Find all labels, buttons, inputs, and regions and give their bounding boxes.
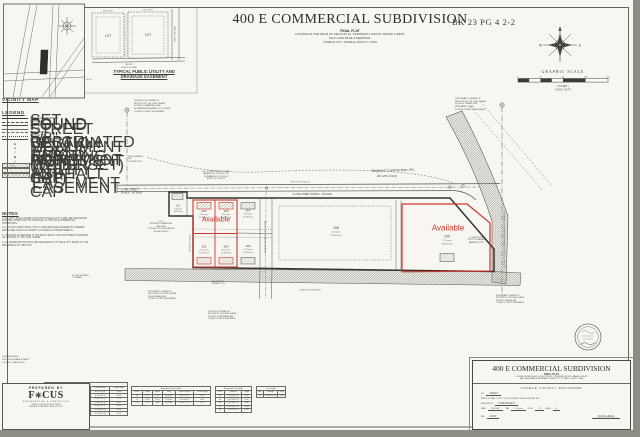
recorder-no-value: 546927 (486, 391, 501, 396)
lot-103-number: 103 (201, 209, 206, 213)
surveyor-seal (575, 324, 601, 350)
lot-102-acres: 0.72 acres (200, 249, 209, 252)
easement-detail: LOT LOT 10.0' P.U.E. 10.0' P.U.E. FRONT … (92, 7, 185, 69)
vicinity-site-marker (40, 50, 48, 74)
detail-lot-a-label: LOT (105, 34, 111, 38)
easement-curve-table-grid: Curve #LengthRadiusDeltaChord DirectionC… (131, 390, 211, 406)
recorder-time-value: 3:36 pm (511, 407, 525, 411)
line-table: Line Table Line #DirectionLengthL1N 45°0… (256, 386, 286, 398)
vine-street-label-left-2: (PUBLIC - 66' ROW) (121, 192, 142, 194)
recorder-book-value: 23 (535, 407, 544, 411)
pue-easement-note: 10' WIDE PUBLIC UTILITY & DRAINAGE EASEM… (463, 237, 490, 244)
lot-107-number: 107 (245, 209, 250, 213)
legend: LEGEND SUBDIVISION BOUNDARY CENTERLINE R… (2, 110, 90, 178)
book-page-reference: BK 23 PG 4 2-2 (452, 17, 516, 27)
available-label-2: Available (432, 224, 465, 233)
adjacent-line-sample (2, 139, 28, 140)
recorder-signature-caption: TOOELE COUNTY RECORDER (592, 419, 620, 420)
focus-logo: F✳CUS (3, 390, 89, 401)
mid-street-label: 250 EAST (PUBLIC - 41.5' ROW) (264, 221, 267, 254)
recorder-time-label: TIME (505, 408, 510, 410)
lot-102-sqft: 31,363 sq ft (199, 252, 209, 255)
logo-letter-f: F (28, 390, 35, 401)
vicinity-map (4, 4, 85, 98)
northeast-corner-monument-note: NORTHEAST CORNER OF SECTION 10, T3S, R4W… (455, 98, 507, 112)
lot-106-sqft: 31,363 sq ft (243, 251, 253, 254)
easement-line-table: Easement Line Table Line #DirectionLengt… (215, 386, 252, 413)
compass-east-label: E (579, 43, 581, 47)
recorder-date-label: DATE (481, 408, 486, 410)
detail-dim-a: 10.0' P.U.E. (103, 11, 114, 13)
vicinity-map-label: VICINITY MAP (2, 97, 39, 102)
adjacent-lot1-note: LOT 1 EXISTING COMMERCIAL BUILDING TOOEL… (142, 221, 180, 233)
easement-detail-nts: N.T.S. (86, 79, 92, 81)
recorder-request-value: DTM Builders (495, 401, 518, 406)
section-monument-icon: ⊕ (2, 142, 28, 146)
lot-105-acres: 0.73 acres (222, 213, 231, 216)
logo-letters-cus: CUS (42, 390, 64, 401)
lot-105-number: 105 (223, 209, 228, 213)
graphic-scale-title: GRAPHIC SCALE (542, 70, 585, 74)
easement-curve-table: Easement Curve Table Curve #LengthRadius… (131, 386, 211, 406)
note-2: 2. A 10 FOOT WIDE PUBLIC UTILITY AND DRA… (2, 227, 90, 233)
recorder-statement: STATE OF UTAH, COUNTY OF TOOELE, RECORDE… (481, 398, 539, 400)
lot-104-sqft: 31,363 sq ft (221, 252, 231, 255)
developer-contact-block: DTM BUILDERS 230 SOUTH MAIN STREET TOOEL… (2, 356, 29, 365)
fire-hydrant-note: EX. FIRE HYDRANT TO REMAIN (72, 275, 92, 280)
easement-detail-caption: TYPICAL PUBLIC UTILITY AND DRAINAGE EASE… (94, 69, 194, 80)
recorder-date-value: 5/9/2022 (488, 407, 503, 411)
recorder-page-value: 4 (553, 407, 560, 411)
scale-tick-50: 50 (562, 76, 565, 78)
north-arrow-icon: W E (539, 26, 581, 62)
south-boundary-dimension: S 89°54'19" W 659.88' (299, 290, 321, 292)
legend-label: WATER EASEMENT (32, 157, 120, 193)
recorder-no-label: NO. (481, 393, 484, 395)
lot-107-sqft: 31,799 sq ft (243, 216, 253, 219)
lot-104-number: 104 (223, 245, 228, 249)
lot-103-sqft: 31,799 sq ft (199, 216, 209, 219)
easement-caption-line-2: DRAINAGE EASEMENT (94, 74, 194, 79)
scale-units-label: ( IN FEET ) (557, 86, 569, 88)
lot-101-number: 101 (176, 205, 181, 208)
sheet-title: 400 E COMMERCIAL SUBDIVISION (225, 12, 475, 28)
recorder-page-label: PAGE (546, 408, 551, 410)
detail-front-label: FRONT (125, 64, 133, 66)
easement-line-sample (2, 132, 28, 133)
prepared-by-block: PREPARED BY F✳CUS ENGINEERING & SURVEYIN… (2, 383, 90, 430)
easement-line-table-grid: Line #DirectionLengthE1N 0°05'41" E10.00… (215, 390, 252, 413)
lot-101-acres: 0.23 acres (174, 207, 182, 210)
legend-area-item: WATER EASEMENT (2, 173, 90, 178)
lot-108-acres: 3.02 acres (332, 231, 341, 234)
note-4: 4. ALL WATER RIGHTS SHALL BE DEDICATED T… (2, 242, 90, 248)
logo-subtitle: ENGINEERING & SURVEYING (3, 401, 89, 403)
detail-lot-b-label: LOT (145, 33, 151, 37)
plat-sheet: LOT LOT 10.0' P.U.E. 10.0' P.U.E. FRONT … (0, 0, 633, 430)
notes-title: NOTES: (2, 211, 90, 216)
vine-street-dimension: S 89°54'19" E 660.00' (290, 182, 310, 184)
preparer-address: 6949 SOUTH HIGH TECH DRIVE MIDVALE, UTAH… (3, 404, 89, 409)
street-monument-icon: ● (2, 146, 28, 150)
south-quarter-monument-note: SOUTH 1/4 CORNER OF SECTION 10, T3S, R4W… (208, 311, 250, 321)
southwest-corner-monument-note: SOUTHWEST CORNER OF SECTION 10, T3S, R4W… (148, 291, 190, 301)
center-quarter-monument-note: CENTER 1/4 CORNER OF SECTION 10, T3S, R4… (134, 100, 186, 114)
seal-signature-squiggle (580, 342, 596, 345)
set-rebar-icon: ■ (2, 155, 28, 159)
recorder-fee-value: 28.00 (487, 414, 500, 419)
sheet-title-block: 400 E COMMERCIAL SUBDIVISION FINAL PLAT … (225, 12, 475, 44)
vacated-row-note: EX. 20' WIDE RIGHT OF WAY VACATED BY TOO… (196, 171, 236, 181)
found-rebar-note: FOUND REBAR & CAP LS 356842 (TYP.) (128, 156, 146, 163)
line-table-grid: Line #DirectionLengthL1N 45°02'05" W14.1… (256, 390, 286, 398)
row-line-sample (2, 125, 28, 126)
lot-109-acres: 2.73 acres (443, 239, 452, 242)
scale-tick-25: 25 (539, 76, 542, 78)
west-boundary-dimension: N 0°05'41" E 103.03' (190, 234, 192, 252)
water-easement-hatch-sample (2, 173, 30, 178)
note-3: 3. THE BASIS OF BEARING IS THE EAST LINE… (2, 235, 90, 241)
scale-ratio-label: 1 INCH = 50 FT. (555, 89, 572, 91)
basis-of-bearing-label: N 0°09'47" E 2643.43' (MEASURED) BASIS O… (503, 211, 506, 268)
recorder-request-label: REQUEST OF (481, 403, 493, 405)
found-rebar-icon: ○ (2, 150, 28, 154)
lot-108-sqft: 131,551 sq ft (331, 234, 342, 237)
lot-106-acres: 0.72 acres (244, 248, 253, 251)
scale-tick-100: 100 (584, 76, 588, 78)
lot-108-number: 108 (333, 226, 339, 230)
recorder-location-2: SALT LAKE BASE & MERIDIAN, TOOELE CITY, … (473, 378, 630, 380)
scale-tick-150: 150 (606, 76, 610, 78)
recorder-block: 400 E COMMERCIAL SUBDIVISION FINAL PLAT … (472, 360, 631, 430)
lot-107-acres: 0.73 acres (244, 213, 253, 216)
lot-102-number: 102 (201, 245, 206, 249)
lot-109-sqft: 118,919 sq ft (442, 242, 453, 245)
lot-106-number: 106 (245, 244, 250, 248)
note-1: 1. ALL LOTS SHALL COMPLY WITH THE TOOELE… (2, 218, 90, 227)
lot-109-number: 109 (444, 235, 450, 239)
boundary-line-sample (2, 118, 28, 119)
centerline-sample (2, 122, 28, 123)
lot-line-sample (2, 129, 28, 130)
scale-tick-0: 0 (517, 76, 519, 78)
lot-104-acres: 0.72 acres (222, 249, 231, 252)
recorder-book-label: BOOK (528, 408, 533, 410)
detail-dim-b: 10.0' P.U.E. (143, 10, 154, 12)
vine-street-label-left-1: E VINE STREET (121, 189, 139, 191)
owner-parcel-note: (86-1299-0-0010) (377, 175, 397, 178)
lot-101-sqft: 10,019 sq ft (174, 210, 183, 213)
recorder-fee-label: FEE (481, 416, 485, 418)
graphic-scale: GRAPHIC SCALE 0 25 50 100 150 ( IN FEET … (517, 70, 610, 91)
vine-street-label-right: E VINE STREET (PUBLIC - 66' ROW) (293, 194, 332, 196)
lot-105-sqft: 31,799 sq ft (221, 216, 231, 219)
section-line-sample (2, 136, 28, 137)
edge-of-asphalt-note: EX. EDGE OF ASPHALT (TYP.) (212, 281, 236, 286)
compass-west-label: W (539, 43, 542, 47)
lot-103-acres: 0.73 acres (200, 213, 209, 216)
owner-handwritten-note: Bayland Construction, Inc. (372, 166, 416, 174)
southeast-corner-monument-note: SOUTHEAST CORNER OF SECTION 10, T3S, R4W… (496, 295, 538, 305)
notes-block: NOTES: 1. ALL LOTS SHALL COMPLY WITH THE… (2, 211, 90, 249)
detail-side-row-label: RIGHT OF WAY (174, 26, 177, 42)
diagonal-road (446, 101, 552, 284)
recorder-sheet-title: 400 E COMMERCIAL SUBDIVISION (473, 364, 630, 373)
recorder-office-title: TOOELE COUNTY RECORDER (473, 383, 630, 390)
sheet-location-3: TOOELE CITY, TOOELE COUNTY, UTAH (225, 41, 475, 45)
